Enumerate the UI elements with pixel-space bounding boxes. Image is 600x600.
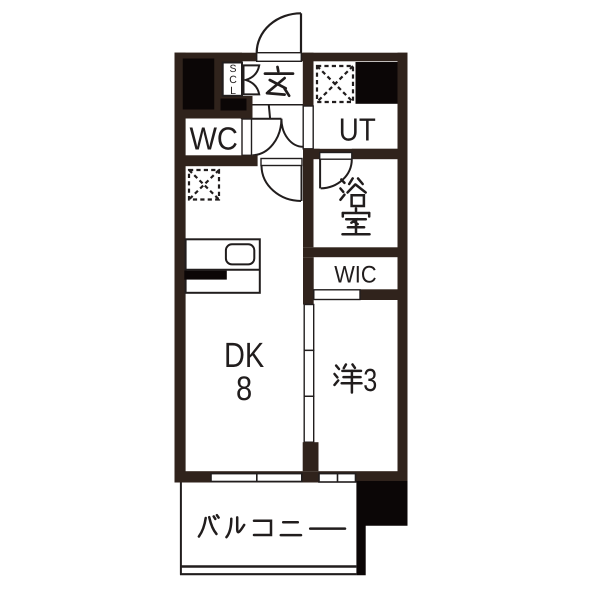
svg-text:WC: WC — [189, 121, 238, 157]
svg-text:WIC: WIC — [334, 262, 376, 289]
svg-text:UT: UT — [339, 112, 376, 148]
svg-text:8: 8 — [236, 370, 252, 408]
svg-text:L: L — [230, 85, 236, 97]
svg-text:3: 3 — [363, 362, 377, 398]
svg-text:DK: DK — [224, 336, 264, 375]
